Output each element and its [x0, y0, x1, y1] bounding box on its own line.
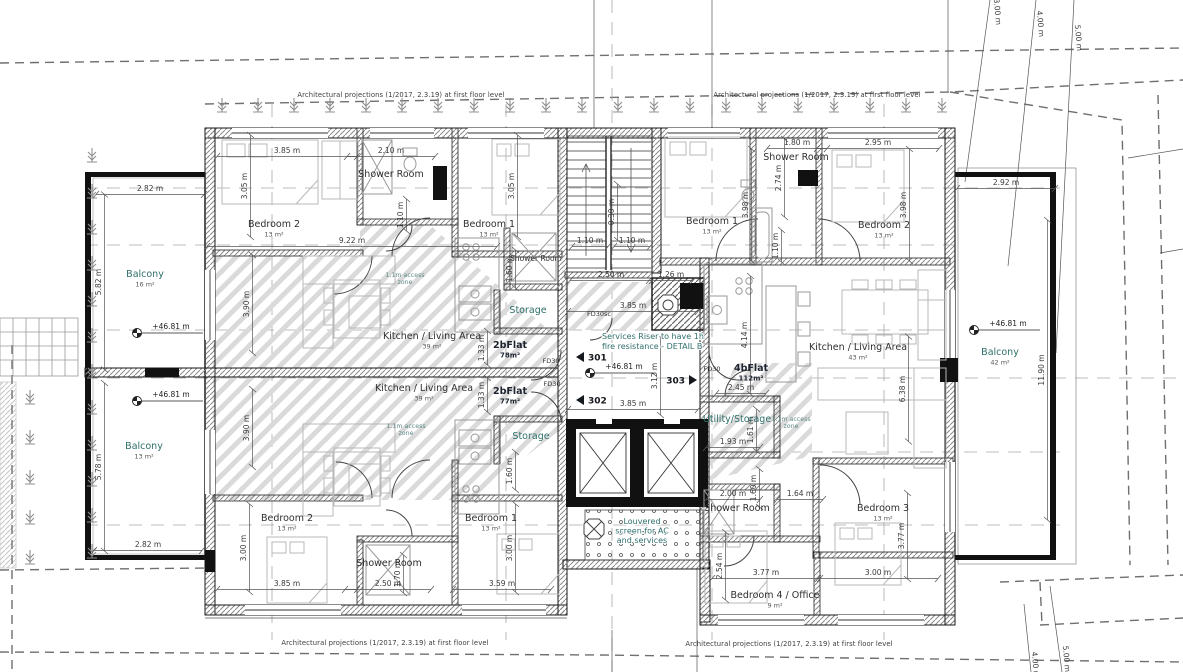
level-marker: +46.81 m: [133, 390, 204, 406]
lifts: [566, 419, 708, 507]
dimension-label: 5.00 m: [1073, 24, 1084, 51]
svg-text:13 m²: 13 m²: [702, 228, 722, 236]
svg-text:Shower Room: Shower Room: [704, 503, 769, 514]
svg-text:+46.81 m: +46.81 m: [152, 390, 189, 399]
svg-text:39 m²: 39 m²: [414, 395, 434, 403]
svg-text:1.60 m: 1.60 m: [505, 458, 514, 484]
room-label: Bedroom 4 / Office9 m²: [730, 590, 819, 610]
svg-text:3.98 m: 3.98 m: [899, 192, 908, 218]
svg-text:Shower Room: Shower Room: [510, 254, 562, 263]
svg-text:3.00 m: 3.00 m: [865, 568, 891, 577]
svg-text:4bFlat: 4bFlat: [734, 363, 769, 374]
dimension-label: 3.00 m: [239, 501, 253, 595]
svg-text:Bedroom 2: Bedroom 2: [261, 513, 313, 524]
dimension-label: 4.00 m: [1030, 651, 1041, 672]
svg-text:1.10 m: 1.10 m: [577, 236, 603, 245]
svg-text:77m²: 77m²: [500, 398, 520, 406]
svg-text:13 m²: 13 m²: [874, 232, 894, 240]
svg-text:3.85 m: 3.85 m: [274, 146, 300, 155]
room-label: Storage: [509, 305, 546, 316]
dimension-label: 3.85 m: [214, 146, 360, 160]
room-label: Balcony13 m²: [125, 441, 163, 461]
svg-text:fire resistance - DETAIL B: fire resistance - DETAIL B: [602, 342, 702, 351]
svg-text:2.54 m: 2.54 m: [715, 553, 724, 579]
svg-text:13 m²: 13 m²: [479, 231, 499, 239]
svg-text:2.74 m: 2.74 m: [774, 165, 783, 191]
svg-text:Balcony: Balcony: [126, 269, 164, 280]
projection-note-bottom-right: Architectural projections (1/2017, 2.3.1…: [684, 640, 894, 648]
svg-text:9 m²: 9 m²: [767, 602, 783, 610]
svg-text:39 m²: 39 m²: [422, 343, 442, 351]
svg-text:zone: zone: [397, 279, 412, 286]
svg-text:Bedroom 4 / Office: Bedroom 4 / Office: [730, 590, 819, 601]
room-label: Bedroom 113 m²: [686, 216, 738, 236]
svg-text:3.77 m: 3.77 m: [753, 568, 779, 577]
dimension-label: 5.82 m: [94, 192, 108, 373]
room-label: Shower Room: [358, 169, 423, 180]
svg-text:Utility/Storage: Utility/Storage: [703, 414, 771, 425]
svg-text:13 m²: 13 m²: [277, 525, 297, 533]
svg-text:112m²: 112m²: [739, 375, 764, 383]
dimension-label: 2.82 m: [91, 540, 205, 554]
dimension-label: 3.85 m: [214, 579, 360, 593]
svg-text:Bedroom 1: Bedroom 1: [463, 219, 515, 230]
room-label: Shower Room: [704, 503, 769, 514]
svg-text:1.93 m: 1.93 m: [720, 437, 746, 446]
projection-note-top-left: Architectural projections (1/2017, 2.3.1…: [296, 91, 506, 99]
svg-text:1.1m access: 1.1m access: [386, 423, 425, 430]
level-marker: +46.81 m: [970, 319, 1041, 335]
room-label: Shower Room: [356, 558, 421, 569]
floor-plan-drawing: 3.85 m2.10 m9.22 m1.80 m2.95 m2.50 m1.26…: [0, 0, 1183, 672]
level-marker: +46.81 m: [133, 322, 204, 338]
svg-text:Storage: Storage: [509, 305, 546, 316]
svg-text:3.00 m: 3.00 m: [505, 535, 514, 561]
svg-text:1.10 m: 1.10 m: [619, 236, 645, 245]
dimension-label: 5.00 m: [1061, 645, 1072, 672]
fire-door-tag: FD30: [542, 357, 559, 365]
services-riser: [652, 278, 704, 330]
room-label: Bedroom 113 m²: [465, 513, 517, 533]
dimension-label: 1.10 m: [569, 236, 611, 250]
svg-text:43 m²: 43 m²: [848, 354, 868, 362]
svg-text:5.00 m: 5.00 m: [1061, 645, 1072, 672]
svg-text:zone: zone: [783, 423, 798, 430]
svg-text:6.38 m: 6.38 m: [898, 376, 907, 402]
svg-text:Louvered: Louvered: [623, 517, 660, 526]
svg-text:1.80 m: 1.80 m: [784, 138, 810, 147]
room-label: Utility/Storage: [703, 414, 771, 425]
svg-text:Kitchen / Living Area: Kitchen / Living Area: [809, 342, 907, 353]
svg-text:3.12 m: 3.12 m: [650, 363, 659, 389]
svg-text:Storage: Storage: [512, 431, 549, 442]
svg-text:2.82 m: 2.82 m: [135, 540, 161, 549]
pergola-grid: [0, 318, 78, 568]
svg-text:and services: and services: [617, 536, 667, 545]
svg-text:5.82 m: 5.82 m: [94, 269, 103, 295]
svg-text:Balcony: Balcony: [125, 441, 163, 452]
svg-text:4.00 m: 4.00 m: [1030, 651, 1041, 672]
dimension-label: 3.59 m: [450, 579, 554, 593]
svg-text:4.00 m: 4.00 m: [1035, 10, 1046, 37]
svg-text:screen for AC: screen for AC: [615, 527, 669, 536]
dimension-label: 5.78 m: [94, 380, 108, 554]
svg-text:3.98 m: 3.98 m: [741, 192, 750, 218]
svg-text:1.1m access: 1.1m access: [771, 416, 810, 423]
dimension-label: 3.00 m: [992, 0, 1003, 25]
svg-text:Balcony: Balcony: [981, 347, 1019, 358]
svg-text:Services Riser to have 1h: Services Riser to have 1h: [602, 332, 704, 341]
svg-text:3.85 m: 3.85 m: [620, 399, 646, 408]
svg-text:1.10 m: 1.10 m: [396, 202, 405, 228]
svg-text:Bedroom 2: Bedroom 2: [248, 219, 300, 230]
svg-text:2.95 m: 2.95 m: [865, 138, 891, 147]
room-label: Shower Room: [763, 152, 828, 163]
room-label: Bedroom 213 m²: [261, 513, 313, 533]
svg-text:9.22 m: 9.22 m: [339, 236, 365, 245]
svg-text:16 m²: 16 m²: [135, 281, 155, 289]
svg-text:3.85 m: 3.85 m: [274, 579, 300, 588]
svg-text:3.05 m: 3.05 m: [240, 173, 249, 199]
svg-text:301: 301: [588, 354, 607, 364]
room-label: Bedroom 313 m²: [857, 503, 909, 523]
room-label: Kitchen / Living Area43 m²: [809, 342, 907, 362]
svg-text:+46.81 m: +46.81 m: [152, 322, 189, 331]
svg-text:1.33 m: 1.33 m: [477, 382, 486, 408]
svg-text:Bedroom 1: Bedroom 1: [686, 216, 738, 227]
svg-text:11.90 m: 11.90 m: [1037, 354, 1046, 385]
svg-text:3.90 m: 3.90 m: [242, 291, 251, 317]
svg-text:13 m²: 13 m²: [264, 231, 284, 239]
svg-text:Bedroom 2: Bedroom 2: [858, 220, 910, 231]
level-marker: +46.81 m: [586, 362, 657, 378]
svg-text:Shower Room: Shower Room: [763, 152, 828, 163]
svg-text:13 m²: 13 m²: [481, 525, 501, 533]
svg-text:Shower Room: Shower Room: [356, 558, 421, 569]
svg-text:13 m²: 13 m²: [873, 515, 893, 523]
svg-text:2.82 m: 2.82 m: [137, 184, 163, 193]
svg-text:zone: zone: [398, 430, 413, 437]
fire-door-tag: FD30sc: [587, 310, 611, 318]
svg-text:4.14 m: 4.14 m: [740, 322, 749, 348]
svg-text:1.60 m: 1.60 m: [749, 475, 758, 501]
svg-text:2.00 m: 2.00 m: [720, 489, 746, 498]
projection-note-bottom-left: Architectural projections (1/2017, 2.3.1…: [280, 639, 490, 647]
room-label: Storage: [512, 431, 549, 442]
svg-text:3.05 m: 3.05 m: [507, 173, 516, 199]
svg-text:3.00 m: 3.00 m: [992, 0, 1003, 25]
room-label: Shower Room: [510, 254, 562, 263]
section-marker-301: 301: [576, 352, 607, 364]
section-marker-302: 302: [576, 395, 607, 407]
svg-text:2.10 m: 2.10 m: [378, 146, 404, 155]
room-label: 4bFlat112m²: [734, 363, 769, 383]
svg-text:2.50 m: 2.50 m: [598, 270, 624, 279]
svg-text:3.77 m: 3.77 m: [897, 523, 906, 549]
dimension-label: 0.30 m: [607, 181, 621, 243]
fire-door-tag: FD30: [703, 365, 720, 373]
floor-plan-svg: 3.85 m2.10 m9.22 m1.80 m2.95 m2.50 m1.26…: [0, 0, 1183, 672]
dimension-label: 4.00 m: [1035, 10, 1046, 37]
svg-text:0.30 m: 0.30 m: [607, 199, 616, 225]
svg-text:Kitchen / Living Area: Kitchen / Living Area: [375, 383, 473, 394]
svg-text:2.92 m: 2.92 m: [993, 178, 1019, 187]
svg-text:+46.81 m: +46.81 m: [989, 319, 1026, 328]
dimension-label: 11.90 m: [1037, 217, 1051, 523]
svg-text:Kitchen / Living Area: Kitchen / Living Area: [383, 331, 481, 342]
fire-door-tag: FD30: [543, 380, 560, 388]
svg-text:2bFlat: 2bFlat: [493, 340, 528, 351]
dimension-label: 3.77 m: [709, 568, 823, 582]
svg-text:302: 302: [588, 397, 607, 407]
room-label: Balcony42 m²: [981, 347, 1019, 367]
dimension-label: 3.85 m: [565, 399, 701, 413]
svg-text:1.64 m: 1.64 m: [787, 489, 813, 498]
room-label: Bedroom 213 m²: [858, 220, 910, 240]
dimension-label: 3.98 m: [899, 146, 913, 264]
svg-text:5.00 m: 5.00 m: [1073, 24, 1084, 51]
svg-text:78m²: 78m²: [500, 352, 520, 360]
svg-text:1.1m access: 1.1m access: [385, 272, 424, 279]
svg-text:1.10 m: 1.10 m: [771, 233, 780, 259]
svg-text:Bedroom 3: Bedroom 3: [857, 503, 909, 514]
svg-text:+46.81 m: +46.81 m: [605, 362, 642, 371]
svg-text:3.00 m: 3.00 m: [239, 535, 248, 561]
note-label: Services Riser to have 1hfire resistance…: [602, 332, 704, 351]
room-label: Balcony16 m²: [126, 269, 164, 289]
dimension-label: 2.82 m: [93, 184, 207, 198]
svg-text:1.26 m: 1.26 m: [658, 270, 684, 279]
svg-text:2bFlat: 2bFlat: [493, 386, 528, 397]
dimension-label: 2.92 m: [954, 178, 1058, 192]
svg-text:5.78 m: 5.78 m: [94, 454, 103, 480]
section-marker-303: 303: [666, 375, 697, 387]
svg-text:3.85 m: 3.85 m: [620, 301, 646, 310]
svg-text:Bedroom 1: Bedroom 1: [465, 513, 517, 524]
svg-text:3.90 m: 3.90 m: [242, 415, 251, 441]
svg-text:Shower Room: Shower Room: [358, 169, 423, 180]
dimension-label: 3.00 m: [815, 568, 941, 582]
svg-text:42 m²: 42 m²: [990, 359, 1010, 367]
svg-text:3.59 m: 3.59 m: [489, 579, 515, 588]
projection-note-top-right: Architectural projections (1/2017, 2.3.1…: [712, 91, 922, 99]
svg-text:13 m²: 13 m²: [134, 453, 154, 461]
svg-text:303: 303: [666, 377, 685, 387]
room-label: Bedroom 213 m²: [248, 219, 300, 239]
